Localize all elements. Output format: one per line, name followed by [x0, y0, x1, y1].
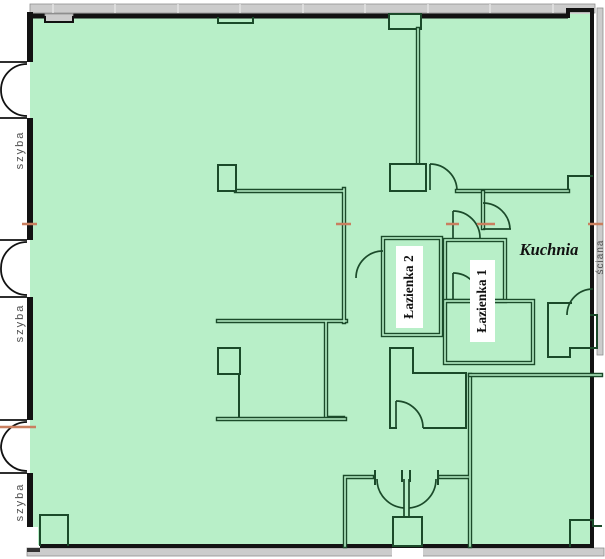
wall-hatch-band-top	[30, 4, 595, 13]
label-bathroom-2: Łazienka 2	[401, 255, 416, 319]
top-wall-pillar	[389, 14, 421, 29]
label-glass-1: szyba	[14, 131, 26, 170]
label-bathroom-1: Łazienka 1	[474, 269, 489, 333]
pillar-central-top	[218, 165, 236, 191]
pillar-partition-bottom	[390, 164, 426, 191]
label-glass-2: szyba	[14, 304, 26, 343]
floor-plan-viewport: Łazienka 2 Łazienka 1 Kuchnia szyba szyb…	[0, 0, 605, 559]
label-wall: ściana	[595, 240, 605, 275]
top-wall-notch-gray	[45, 14, 73, 22]
pillar-lower-left	[218, 348, 240, 374]
wall-hatch-band-bottom	[27, 547, 604, 557]
band-end-mark	[27, 548, 40, 552]
wall-hatch-band-right	[597, 8, 603, 355]
double-door-left-2	[0, 240, 27, 297]
label-kitchen: Kuchnia	[519, 240, 579, 259]
label-glass-3: szyba	[14, 483, 26, 522]
entry-pillar	[393, 517, 422, 546]
floor-area	[30, 14, 592, 545]
entry-threshold-gap	[392, 547, 423, 557]
double-door-left-1	[0, 62, 27, 118]
floor-cutout-bottom-left	[0, 527, 38, 547]
floor-plan-canvas: Łazienka 2 Łazienka 1 Kuchnia szyba szyb…	[0, 0, 605, 559]
